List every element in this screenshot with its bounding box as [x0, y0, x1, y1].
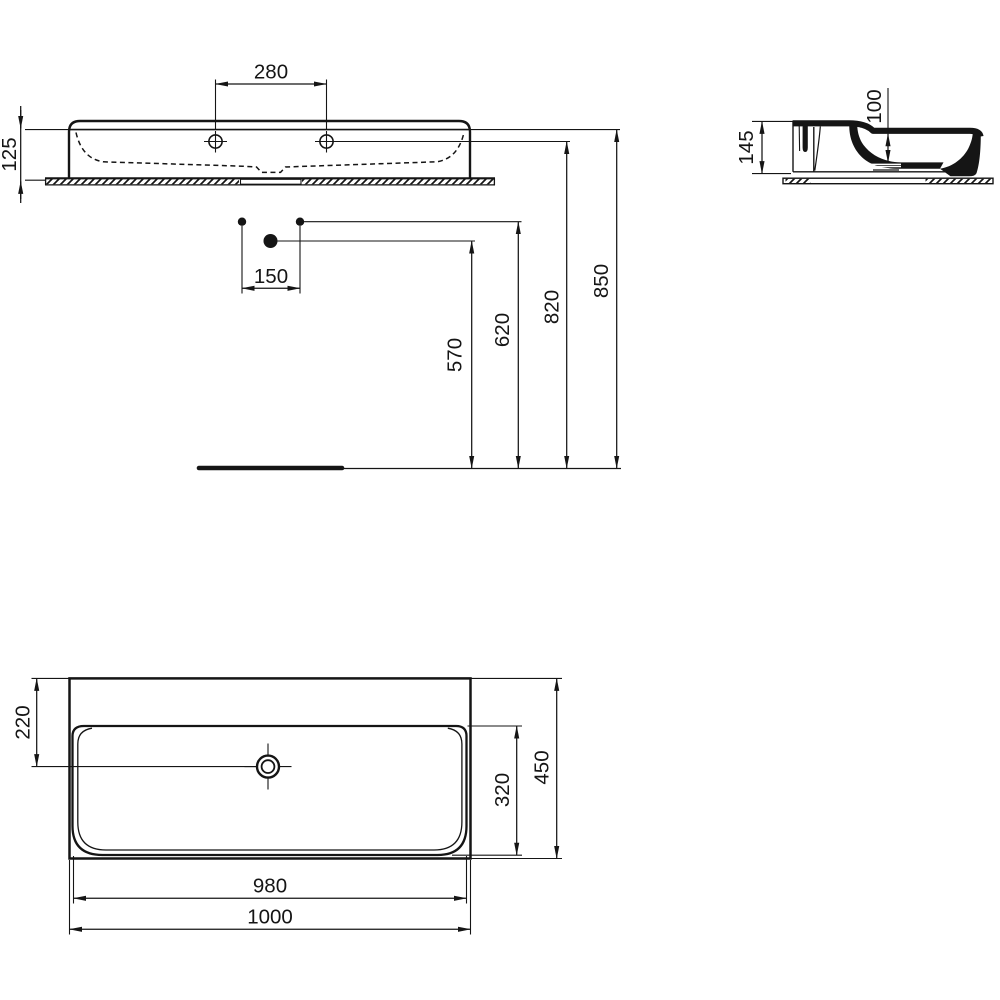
dim-220-label: 220	[12, 705, 35, 739]
dim-150-label: 150	[254, 265, 288, 288]
dim-100-label: 100	[863, 89, 886, 123]
dim-125-label: 125	[0, 137, 21, 171]
plan-view	[32, 678, 563, 934]
front-shelf-hatch-left	[46, 179, 239, 184]
side-deck-and-rim-band	[793, 123, 981, 136]
dim-980-label: 980	[253, 875, 287, 898]
dim-450-label: 450	[531, 750, 554, 784]
side-fixing-slot	[803, 124, 808, 152]
dim-280-label: 280	[254, 61, 288, 84]
side-shelf-hatch-left	[786, 179, 811, 183]
supply-point-left	[238, 218, 246, 226]
dim-620-label: 620	[491, 313, 514, 347]
washbasin-drawing-canvas: 280 125 150 570 620 820 850 145 100 220 …	[0, 0, 1000, 1000]
dim-850-label: 850	[590, 264, 613, 298]
side-right-wall	[940, 132, 981, 177]
front-drain-recess	[241, 179, 302, 184]
dim-820-label: 820	[541, 290, 564, 324]
plan-bowl-outline	[73, 726, 467, 855]
side-bowl-exterior-back-curve	[815, 127, 821, 171]
side-shelf-hatch-right	[926, 179, 992, 183]
front-view	[45, 121, 495, 185]
technical-drawing-page: 280 125 150 570 620 820 850 145 100 220 …	[0, 0, 1000, 1000]
front-shelf-hatch-right	[302, 179, 494, 184]
dim-320-label: 320	[491, 773, 514, 807]
dim-145-label: 145	[735, 130, 758, 164]
dim-1000-label: 1000	[247, 906, 293, 929]
dim-570-label: 570	[444, 338, 467, 372]
